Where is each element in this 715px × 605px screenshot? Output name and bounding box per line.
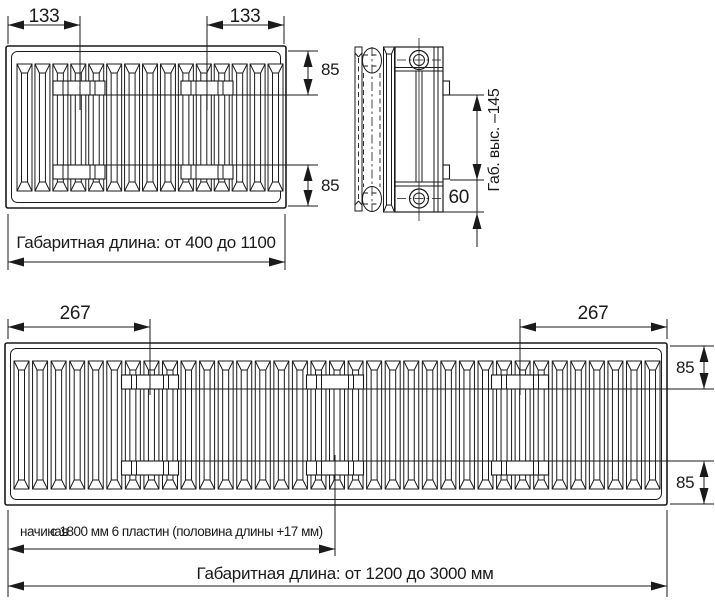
rib (143, 64, 158, 191)
rib (88, 361, 103, 489)
mounting-tab-top (443, 81, 450, 95)
rib (422, 361, 437, 489)
overall-length-long-label: Габаритная длина: от 1200 до 3000 мм (197, 564, 494, 583)
rib (237, 361, 252, 489)
rib (107, 361, 122, 489)
dim-133-right-label: 133 (230, 6, 261, 27)
rib (181, 361, 196, 489)
mounting-bracket (53, 165, 105, 179)
dim-85-long-top: 85 (670, 346, 714, 389)
dim-85-top-label: 85 (321, 60, 339, 79)
dim-85-bottom-label: 85 (321, 176, 339, 195)
rib (218, 361, 233, 489)
rib (200, 361, 215, 489)
dim-60: 60 (448, 180, 481, 247)
rib (459, 361, 474, 489)
rib (125, 64, 140, 191)
front-view-long-radiator (5, 343, 714, 505)
dim-267-left-label: 267 (60, 303, 91, 324)
mounting-bracket (122, 461, 179, 475)
rib (33, 361, 48, 489)
radiator-technical-drawing: 133 133 85 85 Габаритная длина: от 400 д… (0, 0, 715, 605)
dim-85-long-bottom: 85 (670, 461, 714, 504)
overall-length-compact-label: Габаритная длина: от 400 до 1100 (16, 233, 275, 252)
rib (232, 64, 247, 191)
rib (14, 361, 29, 489)
rib (608, 361, 623, 489)
dim-85-long-top-label: 85 (676, 358, 694, 377)
rib (478, 361, 493, 489)
radiator-body-side (395, 38, 443, 221)
rib (626, 361, 641, 489)
dim-60-label: 60 (448, 187, 469, 208)
dim-overall-length-compact: Габаритная длина: от 400 до 1100 (8, 214, 285, 270)
rib (160, 64, 175, 191)
rib (250, 64, 265, 191)
mounting-bracket (53, 81, 105, 95)
mounting-bracket (492, 461, 549, 475)
rib (274, 361, 289, 489)
rib (17, 64, 32, 191)
rib (645, 361, 660, 489)
rib (589, 361, 604, 489)
rib (441, 361, 456, 489)
rib (70, 361, 85, 489)
mounting-bracket (181, 165, 233, 179)
mounting-bracket (307, 375, 364, 389)
rib (367, 361, 382, 489)
rib (571, 361, 586, 489)
convector-profile (355, 47, 382, 212)
rib (385, 361, 400, 489)
drawing-canvas: 133 133 85 85 Габаритная длина: от 400 д… (0, 0, 715, 605)
mounting-tab-bottom (443, 165, 450, 179)
rib (35, 64, 50, 191)
dim-133-left-label: 133 (29, 6, 60, 27)
dim-85-top: 85 (288, 51, 339, 95)
rib (552, 361, 567, 489)
rib (404, 361, 419, 489)
dim-85-long-bottom-label: 85 (676, 473, 694, 492)
plates-caption: с 1800 мм 6 пластин (половина длины +17 … (50, 524, 323, 539)
dim-85-bottom: 85 (288, 165, 339, 206)
rib (268, 64, 283, 191)
front-view-compact-radiator (6, 46, 318, 208)
side-view-radiator (355, 38, 450, 221)
panel-column (384, 47, 395, 212)
rib (292, 361, 307, 489)
rib (107, 64, 122, 191)
rib (255, 361, 270, 489)
overall-height-label: Габ. выс. –145 (486, 88, 503, 191)
rib (51, 361, 66, 489)
dim-267-right-label: 267 (578, 303, 609, 324)
